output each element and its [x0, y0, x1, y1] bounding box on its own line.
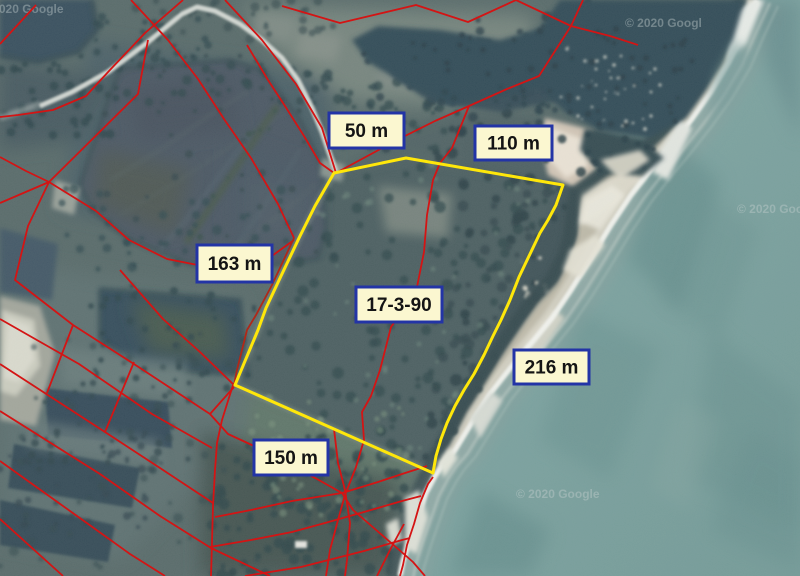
svg-text:50 m: 50 m — [345, 121, 388, 142]
svg-text:110 m: 110 m — [487, 134, 540, 155]
svg-text:216 m: 216 m — [525, 358, 579, 379]
svg-text:150 m: 150 m — [264, 448, 318, 469]
svg-text:17-3-90: 17-3-90 — [366, 295, 432, 316]
svg-text:163 m: 163 m — [208, 254, 262, 275]
